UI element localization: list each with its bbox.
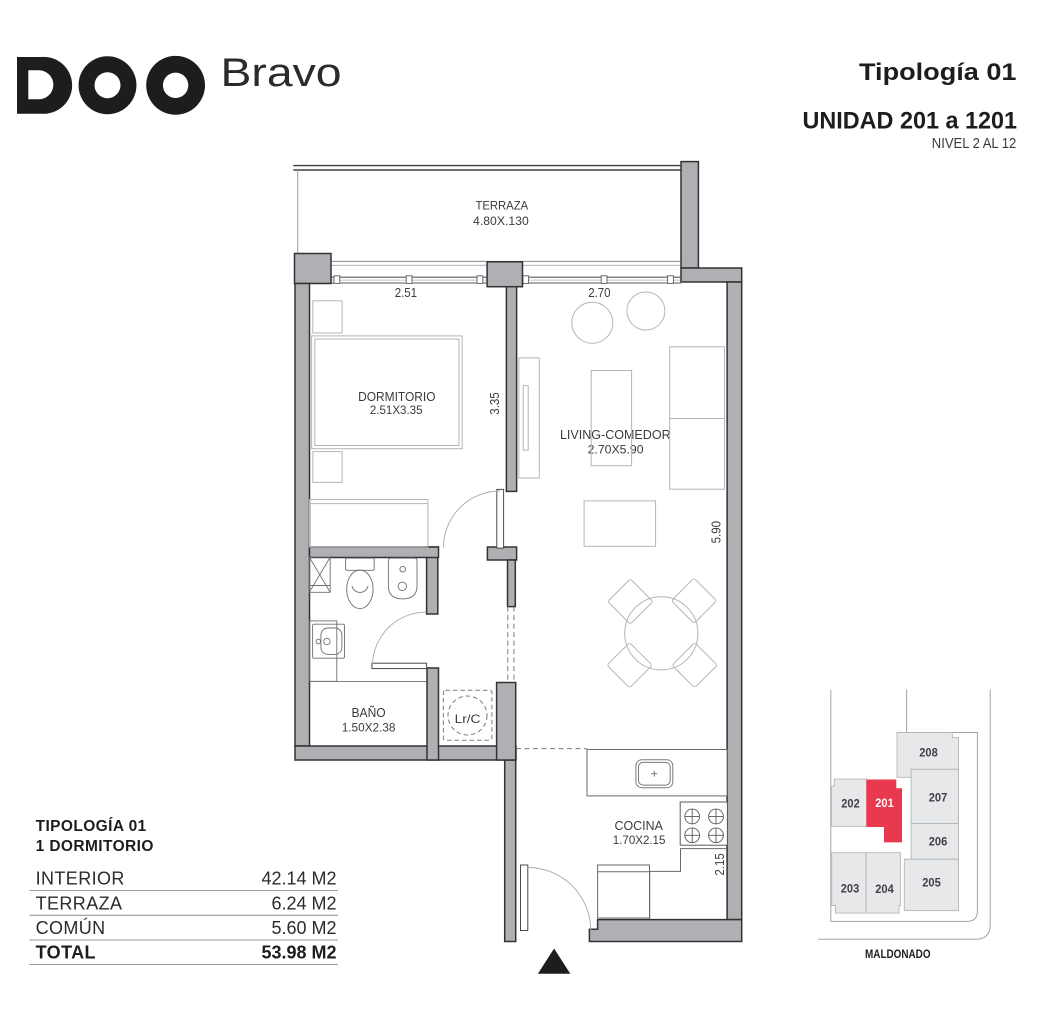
svg-text:205: 205 [922, 876, 941, 890]
svg-text:DORMITORIO: DORMITORIO [358, 389, 435, 404]
svg-text:BAÑO: BAÑO [352, 706, 386, 720]
svg-text:MALDONADO: MALDONADO [865, 947, 931, 961]
svg-text:2.70: 2.70 [588, 286, 610, 300]
svg-text:207: 207 [929, 791, 948, 805]
svg-text:UNIDAD 201 a 1201: UNIDAD 201 a 1201 [803, 108, 1018, 135]
svg-text:NIVEL 2 AL 12: NIVEL 2 AL 12 [932, 136, 1017, 152]
svg-text:53.98 M2: 53.98 M2 [261, 942, 336, 962]
svg-text:1.50X2.38: 1.50X2.38 [342, 720, 396, 734]
svg-text:TERRAZA: TERRAZA [36, 893, 123, 913]
svg-text:4.80X.130: 4.80X.130 [473, 214, 529, 228]
svg-text:TIPOLOGÍA 01: TIPOLOGÍA 01 [36, 818, 147, 835]
svg-text:2.51: 2.51 [395, 286, 417, 300]
svg-text:1.70X2.15: 1.70X2.15 [613, 833, 666, 847]
svg-text:TOTAL: TOTAL [36, 942, 96, 962]
svg-text:Bravo: Bravo [221, 51, 342, 95]
svg-text:Lr/C: Lr/C [455, 712, 481, 726]
svg-text:2.70X5.90: 2.70X5.90 [588, 442, 644, 456]
svg-text:TERRAZA: TERRAZA [476, 199, 529, 213]
svg-text:208: 208 [919, 746, 938, 760]
svg-text:5.90: 5.90 [710, 521, 724, 543]
svg-text:202: 202 [841, 797, 860, 811]
svg-text:LIVING-COMEDOR: LIVING-COMEDOR [560, 428, 671, 442]
svg-text:206: 206 [929, 835, 948, 849]
svg-text:2.51X3.35: 2.51X3.35 [370, 403, 423, 417]
svg-text:203: 203 [841, 882, 860, 896]
svg-text:6.24 M2: 6.24 M2 [271, 893, 336, 913]
svg-text:204: 204 [875, 882, 894, 896]
svg-text:COCINA: COCINA [615, 819, 664, 833]
svg-text:INTERIOR: INTERIOR [36, 868, 125, 888]
svg-text:5.60 M2: 5.60 M2 [271, 918, 336, 938]
svg-text:Tipología 01: Tipología 01 [859, 59, 1017, 86]
svg-text:COMÚN: COMÚN [36, 917, 106, 938]
svg-text:201: 201 [875, 796, 894, 810]
svg-text:3.35: 3.35 [488, 392, 502, 414]
svg-text:42.14 M2: 42.14 M2 [261, 868, 336, 888]
svg-text:1 DORMITORIO: 1 DORMITORIO [36, 838, 154, 855]
svg-text:2.15: 2.15 [713, 853, 727, 875]
